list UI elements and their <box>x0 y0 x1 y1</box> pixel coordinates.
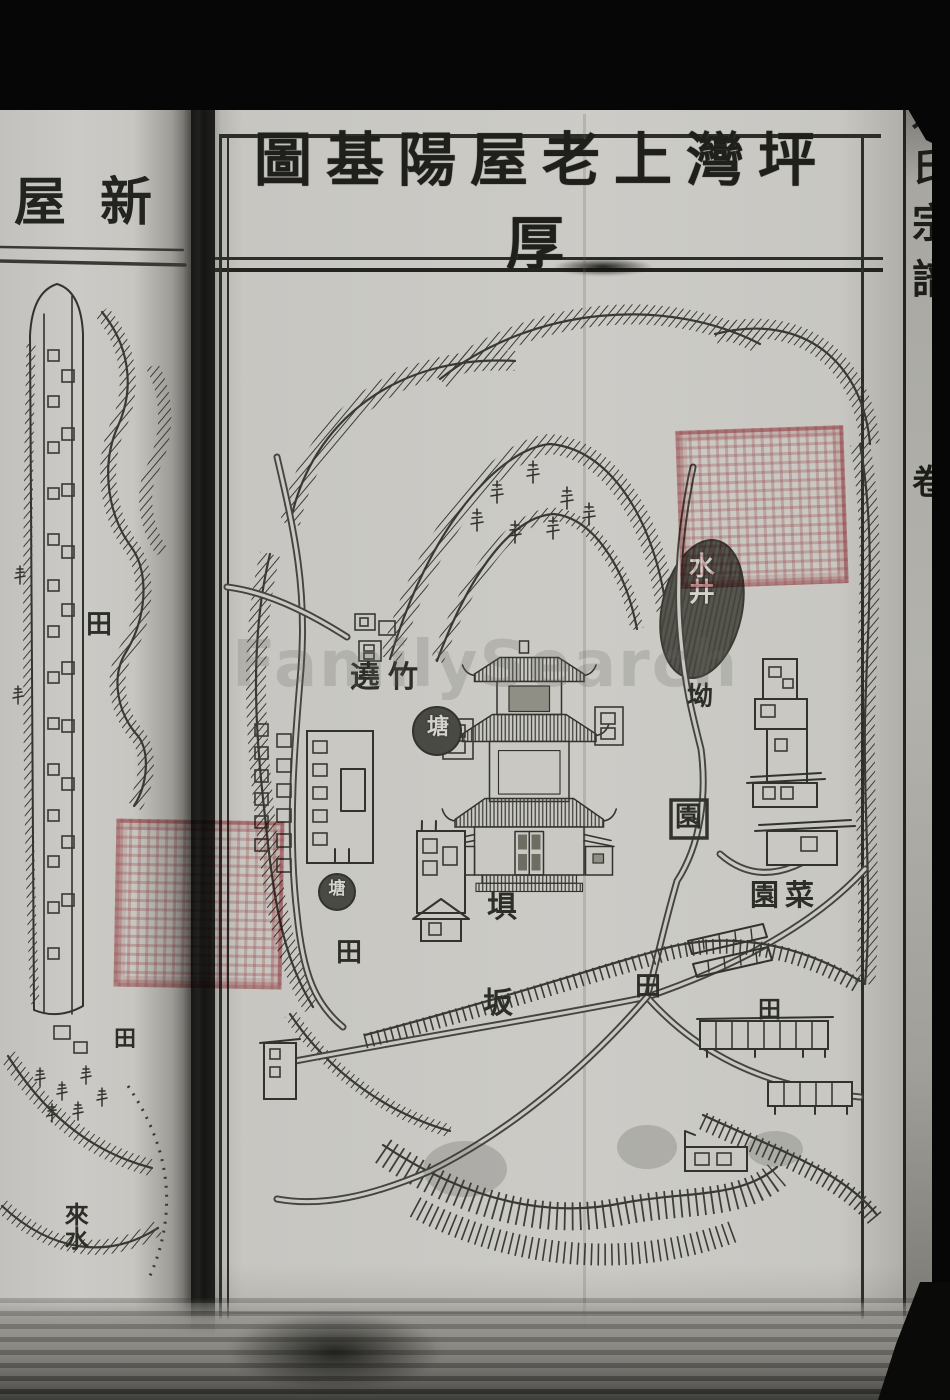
map-title-band: 圖基陽屋老上灣坪厚 <box>223 140 861 254</box>
familysearch-watermark: FamilySearch <box>232 628 792 702</box>
left-field-upper-label: 田 <box>86 612 112 639</box>
garden-label: 園 <box>675 804 702 832</box>
book-scan: 屋新 田 田 來水 圖基陽屋老上灣坪厚 <box>0 0 950 1400</box>
homestead-map-drawing <box>215 269 908 1309</box>
red-seal-imprint-gutter <box>114 819 285 990</box>
incoming-water-label: 來水 <box>62 1202 87 1250</box>
map-title: 圖基陽屋老上灣坪厚 <box>223 113 861 281</box>
scan-right-edge <box>932 0 950 1400</box>
upper-pond-label: 塘 <box>423 716 453 739</box>
left-page: 屋新 田 田 來水 <box>0 14 191 1400</box>
field-west-label: 田 <box>336 940 362 967</box>
left-compound-drawing <box>28 284 83 1014</box>
red-seal-imprint-east <box>675 425 848 589</box>
right-page: 圖基陽屋老上灣坪厚 <box>215 24 908 1396</box>
vegetable-garden-label: 園菜 <box>750 880 820 910</box>
left-field-lower-label: 田 <box>114 1028 136 1051</box>
dam-label: 埧 <box>487 892 517 924</box>
field-middle-label: 田 <box>635 974 661 1001</box>
page-edges-bottom <box>0 1298 950 1400</box>
lower-pond-label: 塘 <box>324 881 350 899</box>
left-page-title: 屋新 <box>14 160 184 235</box>
bottom-dark-blotch <box>228 1312 443 1392</box>
slope-label: 坂 <box>483 988 513 1020</box>
book-fold-gutter <box>183 10 221 1400</box>
south-west-house-drawing <box>260 1039 300 1099</box>
field-east-label: 田 <box>758 998 781 1022</box>
scan-top-edge <box>0 0 950 110</box>
